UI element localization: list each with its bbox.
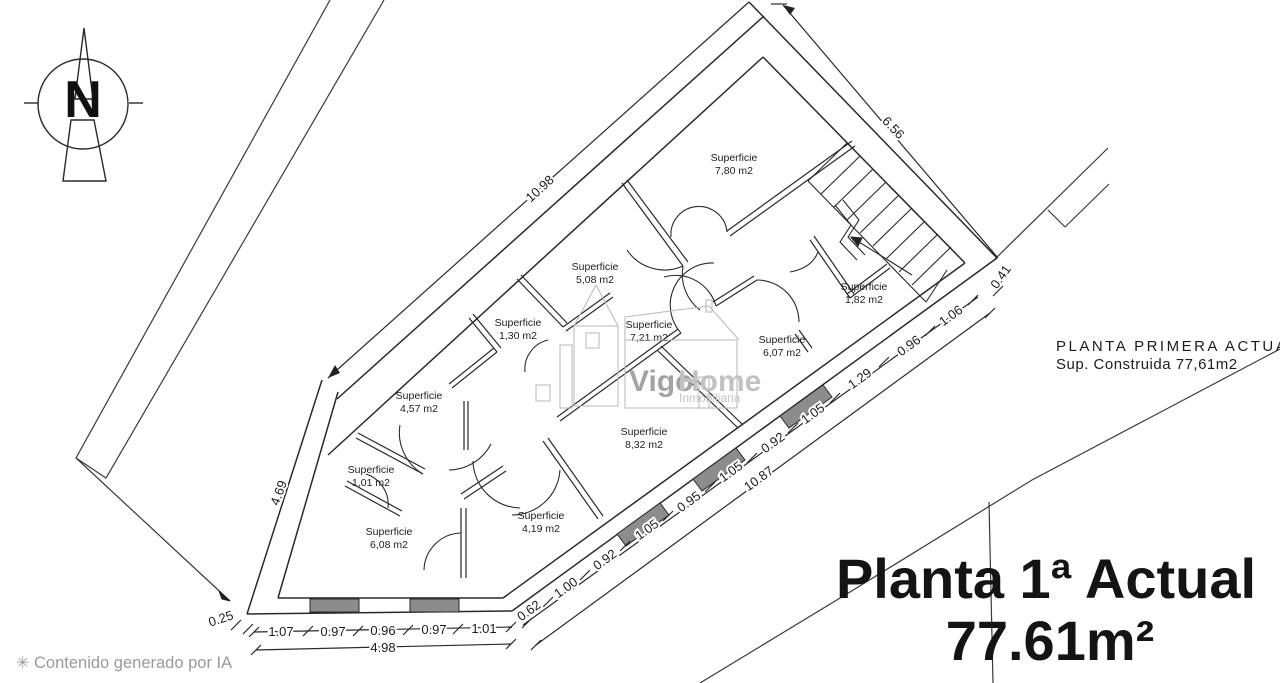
svg-text:1,82 m2: 1,82 m2 bbox=[845, 294, 883, 306]
svg-text:Planta 1ª Actual: Planta 1ª Actual bbox=[836, 547, 1256, 610]
svg-text:77.61m²: 77.61m² bbox=[946, 609, 1155, 672]
svg-text:Inmobiliaria: Inmobiliaria bbox=[679, 391, 741, 405]
svg-text:1.07: 1.07 bbox=[268, 624, 293, 639]
svg-text:Superficie: Superficie bbox=[495, 317, 542, 329]
svg-text:1,30 m2: 1,30 m2 bbox=[499, 330, 537, 342]
svg-text:1.01: 1.01 bbox=[471, 621, 496, 636]
svg-text:Superficie: Superficie bbox=[841, 281, 888, 293]
svg-text:4,19 m2: 4,19 m2 bbox=[522, 523, 560, 535]
svg-text:0.97: 0.97 bbox=[421, 622, 446, 637]
svg-text:Superficie: Superficie bbox=[711, 152, 758, 164]
svg-text:Superficie: Superficie bbox=[348, 464, 395, 476]
svg-text:4,57 m2: 4,57 m2 bbox=[400, 403, 438, 415]
svg-text:Superficie: Superficie bbox=[518, 510, 565, 522]
svg-text:PLANTA PRIMERA ACTUAL: PLANTA PRIMERA ACTUAL bbox=[1056, 338, 1280, 355]
svg-text:Superficie: Superficie bbox=[759, 334, 806, 346]
svg-text:Superficie: Superficie bbox=[572, 261, 619, 273]
svg-text:7,80 m2: 7,80 m2 bbox=[715, 165, 753, 177]
svg-text:6,08 m2: 6,08 m2 bbox=[370, 539, 408, 551]
svg-text:Sup. Construida 77,61m2: Sup. Construida 77,61m2 bbox=[1056, 356, 1238, 373]
svg-text:1,01 m2: 1,01 m2 bbox=[352, 477, 390, 489]
svg-text:✳: ✳ bbox=[16, 655, 29, 672]
svg-text:0.96: 0.96 bbox=[370, 623, 395, 638]
svg-text:Superficie: Superficie bbox=[626, 319, 673, 331]
svg-text:7,21 m2: 7,21 m2 bbox=[630, 332, 668, 344]
svg-text:8,32 m2: 8,32 m2 bbox=[625, 439, 663, 451]
svg-text:Superficie: Superficie bbox=[366, 526, 413, 538]
svg-text:4.98: 4.98 bbox=[370, 640, 395, 655]
svg-text:6,07 m2: 6,07 m2 bbox=[763, 347, 801, 359]
svg-text:N: N bbox=[64, 71, 102, 129]
svg-text:0.97: 0.97 bbox=[320, 624, 345, 639]
svg-text:5,08 m2: 5,08 m2 bbox=[576, 274, 614, 286]
svg-text:Superficie: Superficie bbox=[396, 390, 443, 402]
svg-text:Superficie: Superficie bbox=[621, 426, 668, 438]
svg-text:Contenido generado por IA: Contenido generado por IA bbox=[34, 654, 232, 672]
